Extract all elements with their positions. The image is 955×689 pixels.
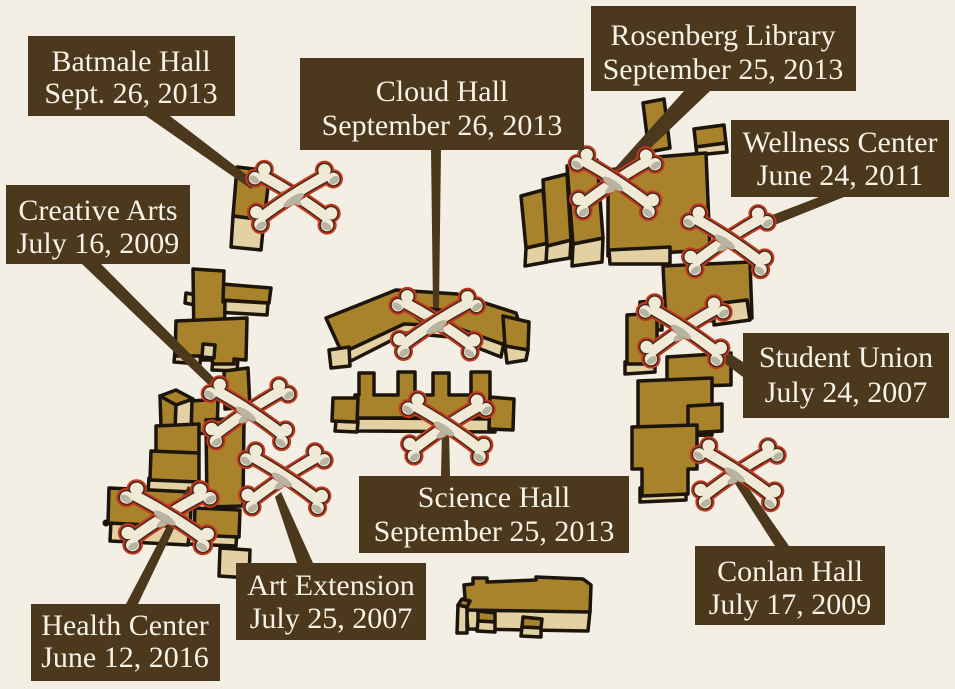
- svg-text:Rosenberg Library: Rosenberg Library: [610, 19, 835, 52]
- svg-text:June 24, 2011: June 24, 2011: [757, 159, 923, 192]
- svg-text:July 17, 2009: July 17, 2009: [709, 588, 872, 621]
- svg-text:Wellness Center: Wellness Center: [742, 126, 937, 159]
- svg-text:June 12, 2016: June 12, 2016: [41, 641, 209, 674]
- svg-text:Creative Arts: Creative Arts: [18, 194, 177, 227]
- svg-text:Cloud Hall: Cloud Hall: [376, 75, 509, 108]
- svg-text:July 24, 2007: July 24, 2007: [765, 376, 928, 409]
- svg-text:Student Union: Student Union: [759, 341, 933, 374]
- svg-text:Art Extension: Art Extension: [247, 569, 414, 602]
- svg-text:Conlan Hall: Conlan Hall: [717, 555, 863, 588]
- svg-text:September 25, 2013: September 25, 2013: [374, 515, 615, 548]
- svg-text:Sept. 26, 2013: Sept. 26, 2013: [44, 77, 217, 110]
- svg-text:July 16, 2009: July 16, 2009: [17, 227, 180, 260]
- svg-text:September 26, 2013: September 26, 2013: [322, 109, 563, 142]
- svg-text:September 25, 2013: September 25, 2013: [603, 53, 844, 86]
- svg-text:Science Hall: Science Hall: [418, 481, 570, 514]
- svg-text:Health Center: Health Center: [41, 609, 208, 642]
- svg-text:Batmale Hall: Batmale Hall: [51, 45, 210, 78]
- svg-text:July 25, 2007: July 25, 2007: [250, 602, 413, 635]
